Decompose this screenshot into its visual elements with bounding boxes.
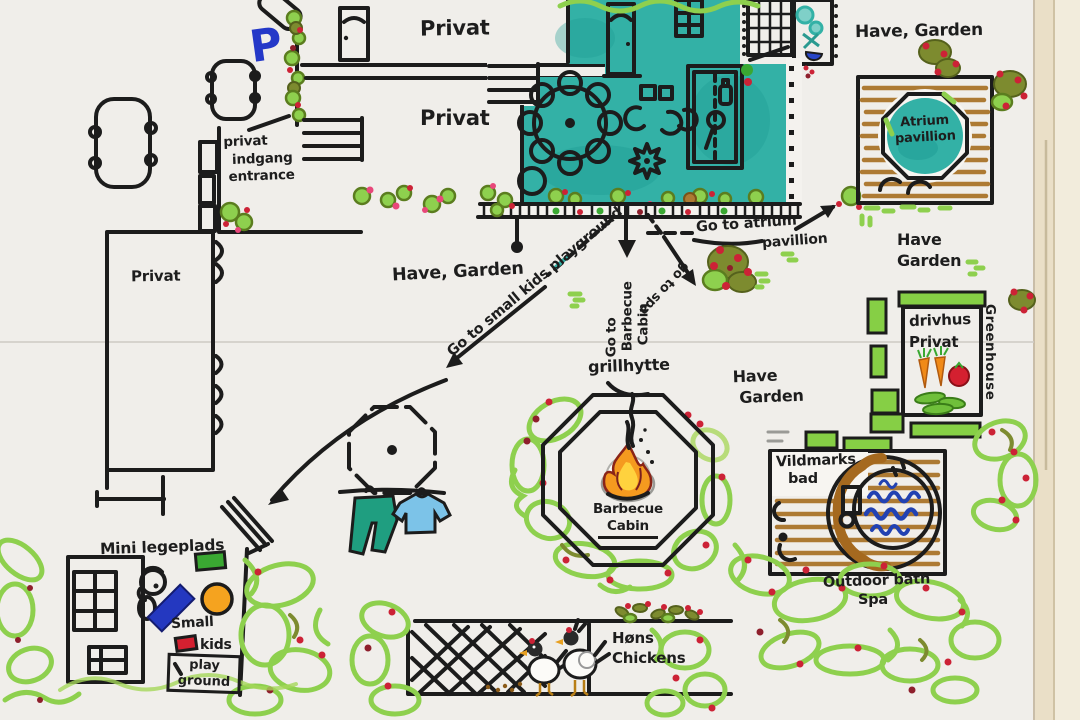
label-privat-left-building: Privat (131, 267, 181, 286)
barbecue-cabin (511, 383, 732, 592)
label-drivhus-1: drivhus (909, 310, 972, 330)
cabin-line-2: Cabin (598, 518, 658, 539)
go-barbecue-line-1: Go to (604, 257, 620, 357)
clothes-dryer-icon (340, 407, 450, 554)
smoke-icon (631, 394, 633, 446)
parking-sign: P (247, 18, 286, 73)
terrace-right-border (786, 58, 802, 208)
door-icon (340, 8, 368, 60)
have-right-line-1: Have (897, 230, 961, 251)
entrance-line-2: indgang (232, 149, 295, 169)
entrance-line-3: entrance (228, 167, 295, 187)
peas-icon (914, 391, 965, 415)
stairs (304, 118, 362, 160)
side-panel-drawing (794, 0, 838, 64)
dining-table-icon (519, 72, 621, 174)
flower-bed (354, 183, 515, 216)
playground-sign-line-2: ground (177, 673, 230, 690)
have-center-line-1: Have (732, 365, 803, 388)
label-greenhouse: Greenhouse (982, 304, 998, 416)
hand-drawn-garden-map: P Privat Privat privat indgang entrance … (0, 0, 1080, 720)
label-hens-da: Høns (612, 629, 654, 647)
patio-grid (742, 0, 792, 60)
shirt-icon (393, 494, 450, 533)
atrium-pavilion (858, 77, 992, 225)
paper-edge (1034, 0, 1080, 720)
cabin-line-1: Barbecue (583, 501, 673, 518)
label-private-entrance: privat indgang entrance (223, 132, 295, 187)
car-icon (90, 99, 156, 187)
entrance-bush (221, 203, 252, 233)
ball-icon (202, 584, 232, 614)
red-block-icon (175, 636, 197, 652)
door-marks (216, 242, 222, 433)
playhouse-icon (68, 557, 143, 682)
label-drivhus-2: Privat (909, 333, 958, 351)
tomato-icon (949, 363, 969, 386)
label-hens-en: Chickens (612, 649, 685, 667)
label-atrium-pavilion: Atrium pavillion (879, 112, 971, 149)
label-privat-room-top: Privat (420, 15, 490, 40)
fire-icon (604, 444, 651, 499)
sun-gear-icon (630, 144, 664, 178)
main-house (478, 0, 862, 253)
pants-icon (350, 496, 397, 554)
label-vildmarks-1: Vildmarks (776, 452, 856, 471)
playground-sign-line-1: play (178, 657, 231, 674)
label-have-garden-right: Have Garden (897, 230, 961, 272)
label-barbecue-cabin: Barbecue Cabin (583, 501, 673, 539)
pen-garland (614, 601, 703, 622)
label-have-garden-top-right: Have, Garden (855, 20, 983, 42)
label-small-kids-1: Small (171, 614, 214, 632)
map-artwork (0, 0, 1080, 720)
label-privat-room-mid: Privat (420, 106, 490, 130)
playground-sign: play ground (166, 653, 242, 695)
label-small-kids-2: kids (200, 637, 232, 653)
label-have-garden-center: Have Garden (732, 365, 804, 409)
have-right-line-2: Garden (897, 251, 961, 272)
path-arrows (268, 205, 836, 505)
label-outdoor-spa: Spa (858, 592, 888, 608)
carrot-icon (918, 346, 948, 388)
chicken-icon (555, 620, 609, 696)
label-grillhytte: grillhytte (588, 355, 670, 377)
go-barbecue-line-2: Barbecue (620, 257, 636, 351)
flower-bush (703, 246, 756, 292)
label-vildmarks-2: bad (788, 471, 818, 487)
have-center-line-2: Garden (739, 386, 804, 409)
car-icon (207, 61, 259, 119)
